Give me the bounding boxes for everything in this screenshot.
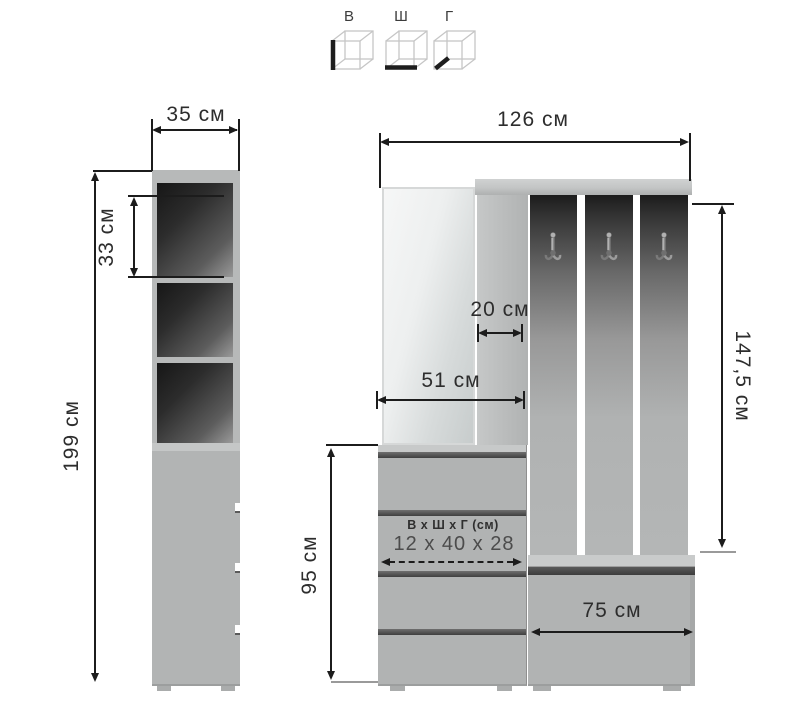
tall-cabinet-door-gap [235,563,240,573]
depth-cube-icon [432,29,478,71]
arrowhead [91,673,99,682]
bench-top-board [528,555,695,567]
dim-tick [521,324,523,342]
tall-cabinet-door-gap [235,503,240,513]
arrowhead [718,205,726,214]
drawer-unit-top-edge [378,445,526,452]
arrowhead [229,126,238,134]
legend-width-label: Ш [385,8,417,25]
arrowhead [513,558,522,566]
drawer-spec-title: В х Ш х Г (см) [378,518,528,532]
arrowhead [91,172,99,181]
tall-cabinet-foot [157,686,171,691]
dim-line [380,399,522,401]
dim-tick [700,551,736,553]
drawer-unit-foot [497,686,512,691]
arrowhead [680,138,689,146]
dim-tick [238,119,240,171]
dim-line [534,631,690,633]
dim-tick [128,195,224,197]
arrowhead [327,671,335,680]
dim-tick [331,681,378,683]
drawer-gap [378,629,526,635]
dim-tick [692,203,734,205]
drawer-gap [378,452,526,458]
coat-hook-icon [599,230,619,268]
dim-line [155,129,237,131]
dim-dashed-line [389,561,513,563]
dim-tall-cabinet-width: 35 см [152,103,240,127]
dim-hook-section-height: 147,5 см [730,330,754,421]
dim-tick [523,391,525,409]
furniture-dimension-diagram: В Ш Г [0,0,800,702]
drawer-unit [378,445,527,686]
arrowhead [718,539,726,548]
dim-line [330,451,332,677]
dim-tick [477,324,479,342]
width-cube-icon [384,29,430,71]
tall-cabinet-lower-door [152,443,240,686]
tall-cabinet-door-gap [235,625,240,635]
dim-line [133,200,135,274]
arrowhead [478,329,487,337]
dim-line [383,141,686,143]
dim-wardrobe-width: 126 см [433,108,633,132]
tall-cabinet-shelf-opening [157,283,233,357]
dim-tall-cabinet-height: 199 см [60,400,84,472]
dim-tick [689,133,691,181]
dim-tick [379,133,381,188]
coat-hook-icon [543,230,563,268]
arrowhead [380,138,389,146]
height-cube-icon [330,29,376,71]
dim-side-panel-width: 20 см [460,298,540,322]
wardrobe-top-board [475,179,692,195]
tall-cabinet-foot [221,686,235,691]
dim-tick [128,276,224,278]
tall-cabinet-shelf-opening [157,363,233,443]
dim-tick [326,444,378,446]
arrowhead [381,558,390,566]
arrowhead [152,126,161,134]
arrowhead [130,197,138,206]
legend-depth-label: Г [433,8,465,25]
drawer-gap [378,510,526,516]
legend-height-label: В [333,8,365,25]
coat-hook-icon [654,230,674,268]
tall-cabinet-shelf-top-edge [152,443,240,451]
arrowhead [377,396,386,404]
arrowhead [327,448,335,457]
dim-bench-width: 75 см [552,599,672,623]
tall-cabinet-shelf-opening [157,183,233,277]
drawer-gap [378,571,526,577]
bench-foot [533,686,551,691]
arrowhead [531,628,540,636]
bench-gap [528,567,695,575]
dim-shelf-height: 33 см [95,207,119,266]
dim-mirror-section-width: 51 см [391,369,511,393]
arrowhead [684,628,693,636]
dim-line [721,208,723,544]
dim-drawer-section-height: 95 см [298,535,322,594]
dim-tick [376,391,378,409]
bench-foot [663,686,681,691]
drawer-unit-foot [390,686,405,691]
dim-tick [151,119,153,171]
dim-tick [93,170,152,172]
drawer-spec-value: 12 x 40 x 28 [378,533,530,556]
